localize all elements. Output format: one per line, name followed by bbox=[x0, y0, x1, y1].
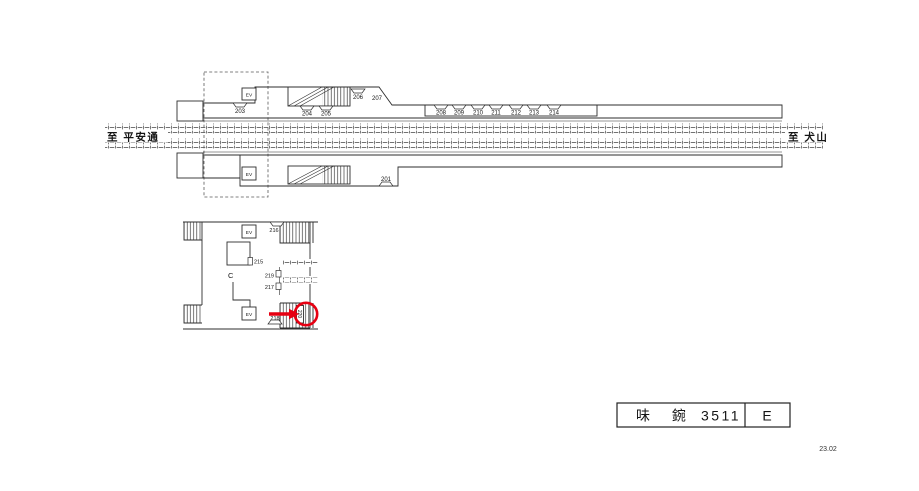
map-canvas: 至 平安通 至 犬山 EV 203 204 205 206 207 208 20… bbox=[0, 0, 919, 491]
elevator-label: EV bbox=[246, 230, 253, 236]
map-code: 3511 bbox=[701, 408, 741, 424]
concourse-inner-wall bbox=[233, 282, 250, 307]
rail-line bbox=[105, 129, 823, 134]
stair-hatching bbox=[322, 87, 350, 106]
ticket-gate-row bbox=[283, 278, 318, 283]
elevator-label: EV bbox=[246, 312, 253, 318]
platform-head bbox=[177, 153, 203, 178]
elevator-label: EV bbox=[246, 93, 253, 99]
sign-211: 211 bbox=[491, 111, 501, 117]
sign-212: 212 bbox=[511, 111, 522, 117]
stair-hatching bbox=[280, 222, 310, 243]
sign-bracket-icon bbox=[276, 271, 281, 278]
sign-216: 216 bbox=[269, 228, 278, 234]
sign-204: 204 bbox=[302, 112, 313, 118]
sign-210: 210 bbox=[473, 111, 484, 117]
platform-outline bbox=[203, 155, 782, 186]
sign-trapezoid-icon bbox=[527, 105, 541, 109]
point-c-label: C bbox=[228, 271, 234, 280]
platform-head bbox=[177, 101, 203, 121]
sign-trapezoid-icon bbox=[319, 106, 333, 110]
sign-trapezoid-icon bbox=[509, 105, 523, 109]
sign-208: 208 bbox=[436, 111, 447, 117]
sign-trapezoid-icon bbox=[489, 105, 503, 109]
station-room bbox=[227, 242, 250, 265]
sign-219: 219 bbox=[265, 274, 274, 280]
size-class: E bbox=[762, 408, 771, 424]
stair-hatching bbox=[322, 166, 350, 184]
sign-205: 205 bbox=[321, 112, 332, 118]
tracks: 至 平安通 至 犬山 bbox=[104, 124, 831, 149]
concourse-plan: EV EV C 215 216 219 217 218 220 bbox=[183, 222, 318, 329]
stair-hatching bbox=[184, 222, 202, 240]
rail-line bbox=[105, 124, 823, 129]
rail-line bbox=[105, 144, 823, 149]
stair-hatching bbox=[184, 305, 202, 323]
stairs-upper-platform bbox=[288, 87, 350, 106]
sign-trapezoid-icon bbox=[434, 105, 448, 109]
sign-trapezoid-icon bbox=[471, 105, 485, 109]
sign-201: 201 bbox=[381, 177, 392, 183]
sign-trapezoid-icon bbox=[233, 103, 247, 107]
sign-203: 203 bbox=[235, 109, 246, 115]
station-ad-location-map: 至 平安通 至 犬山 EV 203 204 205 206 207 208 20… bbox=[0, 0, 919, 491]
sign-206: 206 bbox=[353, 95, 364, 101]
station-name: 味 鋺 bbox=[636, 408, 695, 424]
sign-217: 217 bbox=[265, 285, 274, 291]
stairs-lower-platform bbox=[288, 166, 350, 184]
sign-209: 209 bbox=[454, 111, 465, 117]
sign-trapezoid-icon bbox=[300, 106, 314, 110]
sign-213: 213 bbox=[529, 111, 540, 117]
rail-line bbox=[105, 139, 823, 144]
sign-trapezoid-icon bbox=[547, 105, 561, 109]
sign-214: 214 bbox=[549, 111, 560, 117]
sign-bracket-icon bbox=[276, 283, 281, 290]
elevator-label: EV bbox=[246, 172, 253, 178]
ticket-gate-row bbox=[283, 261, 318, 266]
sign-207: 207 bbox=[372, 96, 383, 102]
revision-date: 23.02 bbox=[819, 446, 837, 453]
sign-trapezoid-icon bbox=[351, 89, 365, 93]
sign-bracket-icon bbox=[248, 258, 253, 266]
sign-215: 215 bbox=[254, 260, 263, 266]
direction-label-right: 至 犬山 bbox=[788, 131, 828, 144]
sign-trapezoid-icon bbox=[452, 105, 466, 109]
direction-label-left: 至 平安通 bbox=[107, 131, 159, 144]
title-block: 味 鋺 3511 E bbox=[617, 403, 790, 427]
